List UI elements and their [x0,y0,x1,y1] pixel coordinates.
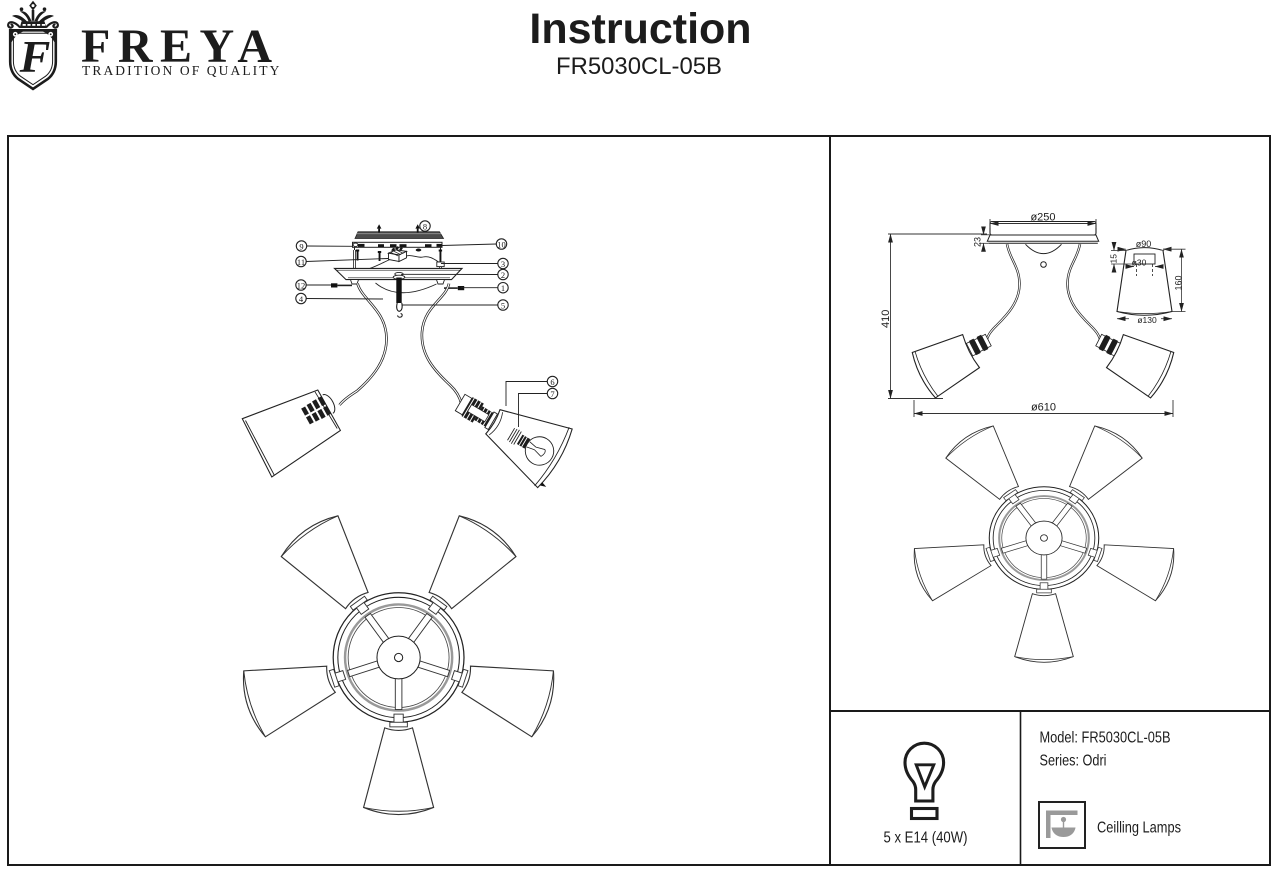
svg-text:5 x E14 (40W): 5 x E14 (40W) [884,830,968,847]
svg-text:410: 410 [880,310,892,328]
svg-text:9: 9 [299,241,303,251]
svg-text:Instruction: Instruction [529,5,751,53]
svg-text:11: 11 [297,257,305,267]
svg-text:15: 15 [1109,254,1119,264]
svg-text:Model: FR5030CL-05B: Model: FR5030CL-05B [1040,729,1171,746]
svg-text:3: 3 [501,259,505,269]
svg-text:10: 10 [497,239,506,249]
svg-text:6: 6 [550,377,554,387]
svg-text:23: 23 [973,237,983,247]
svg-text:Ceilling Lamps: Ceilling Lamps [1097,820,1181,837]
svg-text:1: 1 [501,283,505,293]
svg-text:ø610: ø610 [1031,402,1056,414]
svg-text:7: 7 [550,389,554,399]
svg-text:ø30: ø30 [1132,258,1147,268]
svg-text:FR5030CL-05B: FR5030CL-05B [556,53,722,80]
svg-text:Series: Odri: Series: Odri [1040,752,1107,769]
svg-text:TRADITION OF QUALITY: TRADITION OF QUALITY [82,63,281,78]
svg-text:F: F [19,31,51,82]
svg-text:8: 8 [423,221,427,231]
svg-text:ø90: ø90 [1136,239,1152,249]
svg-text:5: 5 [501,300,505,310]
svg-text:12: 12 [297,280,306,290]
svg-text:ø250: ø250 [1030,212,1055,224]
svg-text:160: 160 [1174,275,1184,290]
svg-text:2: 2 [501,270,505,280]
svg-text:ø130: ø130 [1137,315,1157,325]
